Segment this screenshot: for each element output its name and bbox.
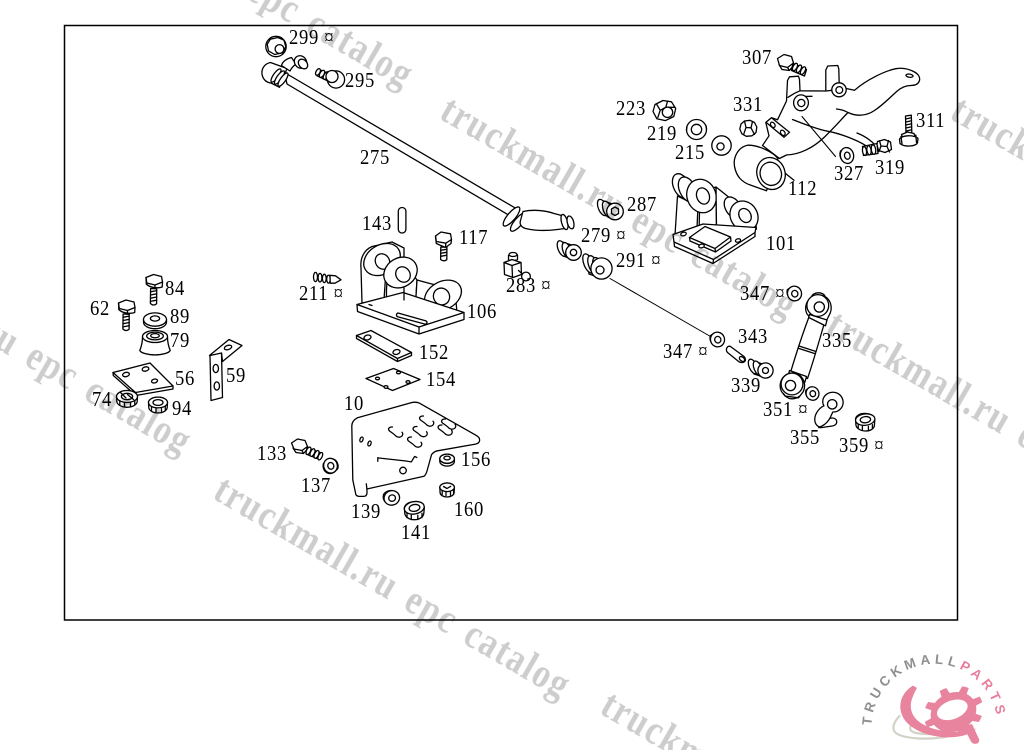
svg-text:339: 339 — [731, 374, 761, 398]
svg-text:143: 143 — [362, 212, 392, 236]
svg-text:319: 319 — [875, 156, 905, 180]
svg-text:343: 343 — [738, 325, 768, 349]
svg-text:275: 275 — [360, 146, 390, 170]
svg-text:141: 141 — [401, 521, 431, 545]
svg-text:211 ¤: 211 ¤ — [299, 282, 344, 306]
svg-text:84: 84 — [165, 277, 185, 301]
svg-text:160: 160 — [454, 498, 484, 522]
svg-text:359 ¤: 359 ¤ — [839, 434, 884, 458]
svg-text:101: 101 — [766, 232, 796, 256]
svg-text:117: 117 — [459, 226, 488, 250]
svg-text:327: 327 — [834, 162, 864, 186]
svg-text:112: 112 — [788, 177, 817, 201]
svg-text:62: 62 — [90, 297, 110, 321]
svg-text:219: 219 — [647, 122, 677, 146]
svg-text:347 ¤: 347 ¤ — [663, 340, 708, 364]
svg-text:311: 311 — [916, 109, 945, 133]
svg-text:283 ¤: 283 ¤ — [506, 274, 551, 298]
svg-text:223: 223 — [616, 97, 646, 121]
svg-text:10: 10 — [344, 392, 364, 416]
svg-text:355: 355 — [790, 426, 820, 450]
svg-text:331: 331 — [733, 93, 763, 117]
svg-text:56: 56 — [175, 367, 195, 391]
svg-text:307: 307 — [742, 46, 772, 70]
svg-text:106: 106 — [467, 300, 497, 324]
svg-text:137: 137 — [301, 474, 331, 498]
svg-text:59: 59 — [226, 364, 246, 388]
svg-text:89: 89 — [170, 305, 190, 329]
svg-text:79: 79 — [170, 329, 190, 353]
svg-text:215: 215 — [675, 141, 705, 165]
svg-text:154: 154 — [426, 368, 456, 392]
svg-text:156: 156 — [461, 448, 491, 472]
svg-text:133: 133 — [257, 442, 287, 466]
svg-text:351 ¤: 351 ¤ — [763, 398, 808, 422]
svg-text:152: 152 — [419, 341, 449, 365]
svg-text:139: 139 — [351, 500, 381, 524]
